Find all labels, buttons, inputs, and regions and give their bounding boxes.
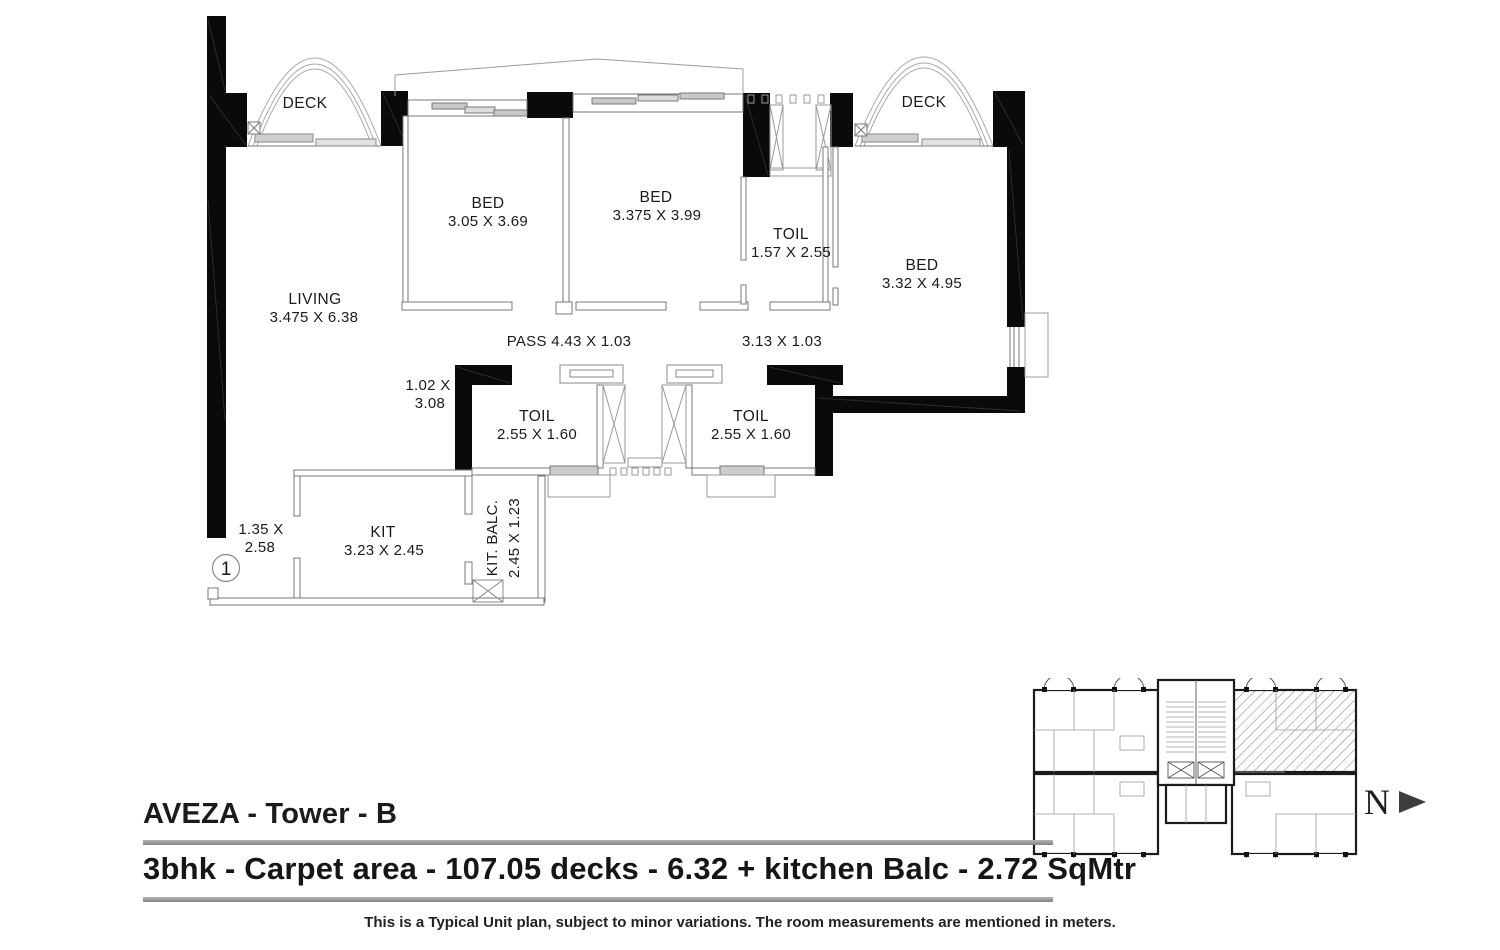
key-plan <box>1030 678 1360 858</box>
deck-left-label: DECK <box>283 95 328 112</box>
foyer-dim-line2: 2.58 <box>245 539 275 556</box>
floorplan-page: DECK DECK BED 3 <box>0 0 1500 950</box>
keyplan-wing-br <box>1232 774 1356 858</box>
toil-top-label: TOIL <box>773 226 809 243</box>
keyplan-wing-bl <box>1034 774 1158 858</box>
toil-left-dims: 2.55 X 1.60 <box>497 426 577 443</box>
unit-marker-number: 1 <box>221 559 232 580</box>
deck-right-label: DECK <box>902 94 947 111</box>
north-indicator: N <box>1364 784 1426 820</box>
toil-right-dims: 2.55 X 1.60 <box>711 426 791 443</box>
divider-rule-bottom <box>143 897 1053 902</box>
living-dims: 3.475 X 6.38 <box>270 309 359 326</box>
living-label: LIVING <box>288 291 341 308</box>
bed1-dims: 3.05 X 3.69 <box>448 213 528 230</box>
pass-right-label: 3.13 X 1.03 <box>742 333 822 350</box>
bed3-label: BED <box>905 257 938 274</box>
divider-rule-top <box>143 840 1053 845</box>
toil-top-dims: 1.57 X 2.55 <box>751 244 831 261</box>
bed2-dims: 3.375 X 3.99 <box>613 207 702 224</box>
kit-balc-label: KIT. BALC. <box>484 500 501 576</box>
kit-balc-dims: 2.45 X 1.23 <box>506 498 523 578</box>
unit-plan: DECK DECK BED 3 <box>0 0 1500 700</box>
passage-dim-line1: 1.02 X <box>405 377 450 394</box>
kit-dims: 3.23 X 2.45 <box>344 542 424 559</box>
kit-label: KIT <box>370 524 395 541</box>
passage-dim-line2: 3.08 <box>415 395 445 412</box>
toil-left-label: TOIL <box>519 408 555 425</box>
corridor-niches <box>560 365 722 383</box>
plan-subtitle: 3bhk - Carpet area - 107.05 decks - 6.32… <box>143 851 1136 887</box>
keyplan-core <box>1158 680 1234 823</box>
north-arrow-icon <box>1399 791 1426 813</box>
bed3-dims: 3.32 X 4.95 <box>882 275 962 292</box>
plan-title: AVEZA - Tower - B <box>143 798 397 831</box>
pass-label: PASS 4.43 X 1.03 <box>507 333 632 350</box>
keyplan-wing-tl <box>1034 678 1158 772</box>
bed1-label: BED <box>471 195 504 212</box>
unit-marker: 1 <box>213 555 240 582</box>
north-label: N <box>1364 784 1390 820</box>
bed2-label: BED <box>639 189 672 206</box>
toil-right-label: TOIL <box>733 408 769 425</box>
foyer-dim-line1: 1.35 X <box>238 521 283 538</box>
roof-projection-line <box>395 59 743 96</box>
plan-footnote: This is a Typical Unit plan, subject to … <box>0 914 1480 931</box>
